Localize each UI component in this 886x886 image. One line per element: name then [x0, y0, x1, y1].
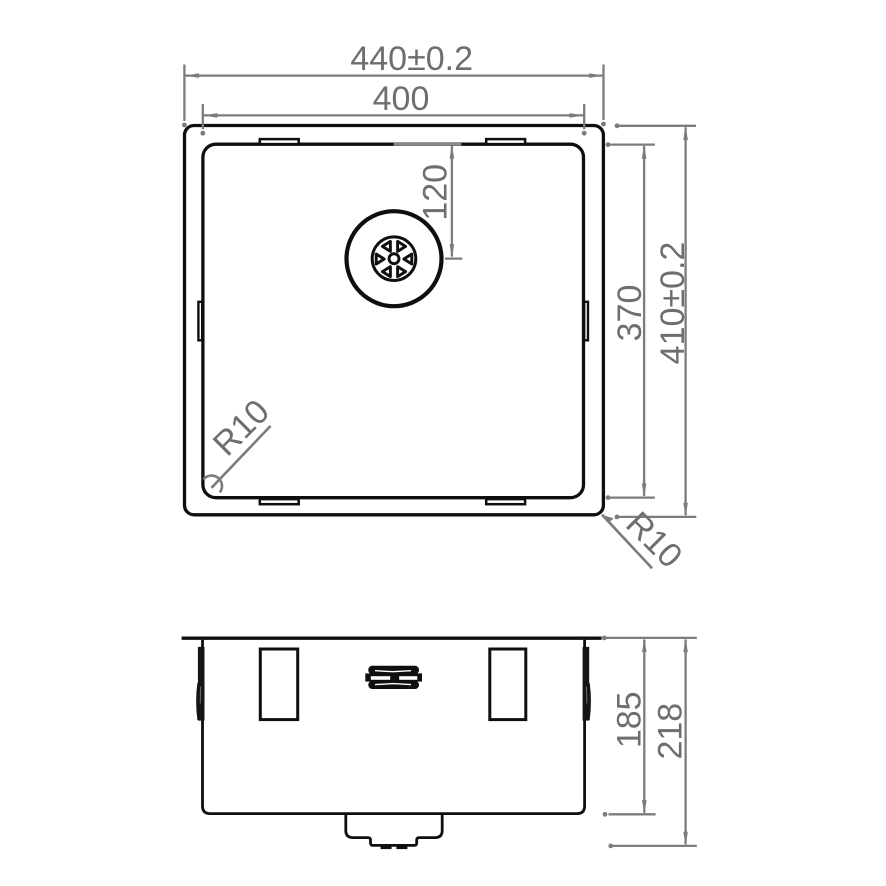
svg-text:185: 185: [610, 691, 648, 748]
svg-text:400: 400: [373, 80, 430, 118]
svg-text:440±0.2: 440±0.2: [350, 40, 473, 78]
svg-text:410±0.2: 410±0.2: [654, 242, 692, 365]
svg-text:120: 120: [417, 164, 455, 221]
svg-text:218: 218: [652, 703, 690, 760]
svg-text:370: 370: [611, 285, 649, 342]
